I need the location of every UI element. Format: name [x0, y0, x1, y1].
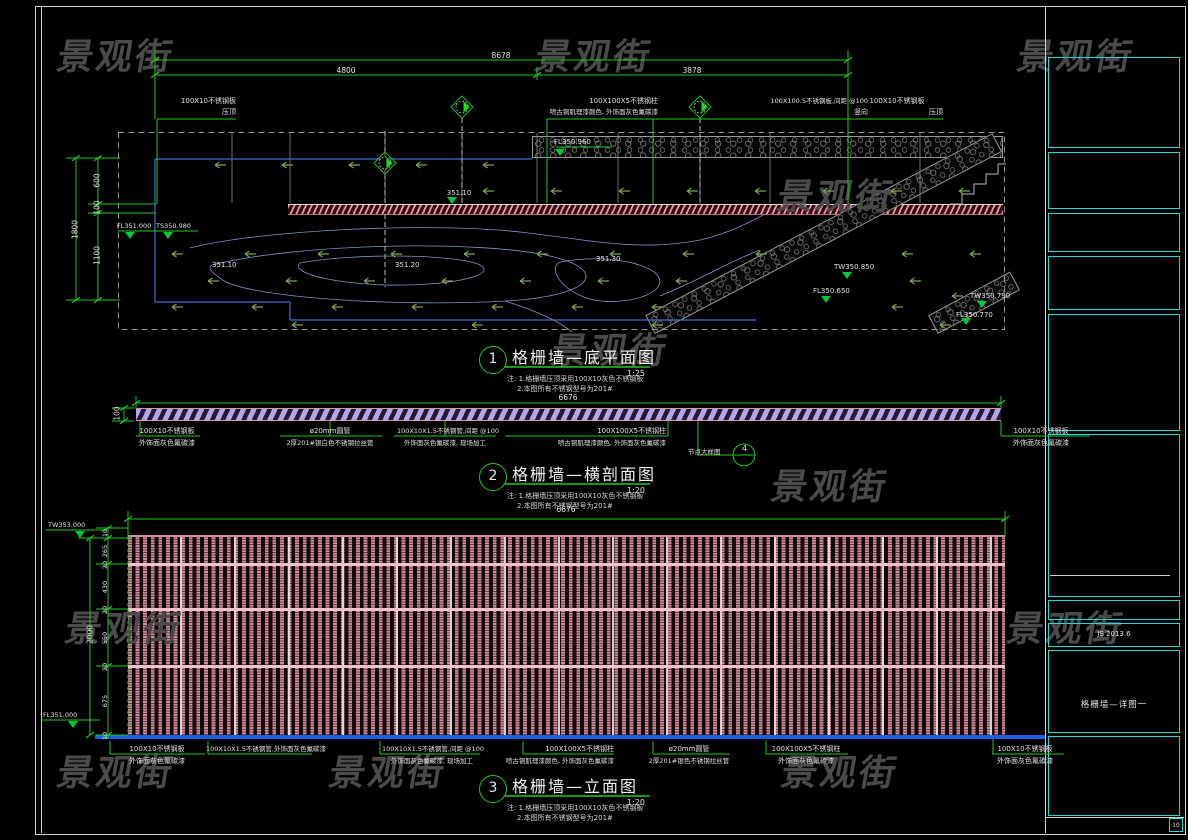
- elev-leader-column-1: 100X100X5不锈钢柱: [518, 744, 614, 754]
- view-number-1: 1: [479, 346, 507, 374]
- sec-leader-plate-left-2: 外饰面灰色氟碳漆: [128, 438, 206, 448]
- spot-fl351000: FL351.000: [117, 221, 157, 231]
- plan-dim-left-total: 1800: [71, 217, 80, 243]
- leader-cap-right-2: 压顶: [851, 107, 943, 117]
- sheet-number: 10: [1169, 821, 1183, 831]
- plan-contour-lines: [190, 214, 765, 332]
- elev-leader-tube-b1: 100X10X1.5不锈钢管,间距 @100: [382, 744, 480, 754]
- elev-seg-675: 675: [100, 690, 110, 712]
- elev-leader-column-2: 喷古铜肌理漆颜色, 外饰面灰色氟碳漆: [478, 756, 614, 766]
- elev-dim-left-total: 2000: [86, 621, 95, 649]
- leader-plate-1: 100X100.5不锈钢板,间距 @100: [730, 96, 868, 106]
- view-number-3: 3: [479, 775, 507, 803]
- elev-seg-20c: 20: [100, 656, 110, 678]
- spot-ts350980: TS350.980: [156, 221, 198, 231]
- spot-35110-top: 351.10: [437, 188, 481, 198]
- plan-dim-left3: 1100: [93, 243, 102, 269]
- sec-leader-pipe-2: 2厚201#银白色不锈钢拉丝管: [282, 438, 378, 448]
- elev-leader-column-b1: 100X100X5不锈钢柱: [764, 744, 848, 754]
- elev-leader-tube-b2: 外饰面灰色氟碳漆, 现场加工: [386, 756, 478, 766]
- elevation-dim-ticks: [86, 516, 1009, 738]
- detail-bubble-number: 4: [737, 444, 752, 454]
- elev-seg-430: 430: [100, 576, 110, 598]
- contour-35130: 351.30: [596, 254, 638, 264]
- plan-planting-arrows: [172, 162, 981, 328]
- elev-leader-plate-left-2: 外饰面灰色氟碳漆: [118, 756, 196, 766]
- titleblock-date: JS 2013.6: [1048, 629, 1180, 639]
- sec-leader-column-2: 喷古铜肌理漆颜色, 外饰面灰色氟碳漆: [530, 438, 666, 448]
- plan-view-title: 格栅墙—底平面图: [512, 344, 656, 368]
- elevation-note-2: 2.本图所有不锈钢型号为201#: [517, 814, 613, 824]
- plan-boundary: [119, 133, 1007, 330]
- level-fl351000: FL351.000: [43, 710, 97, 720]
- elevation-view-title: 格栅墙—立面图: [512, 773, 638, 797]
- detail-bubble-label: 节点大样图: [688, 447, 732, 457]
- elev-leader-pipe-1: ø20mm圆管: [650, 744, 728, 754]
- plan-dimensions: [66, 50, 943, 300]
- plan-note-1: 注: 1.格栅墙压顶采用100X10灰色不锈钢板: [507, 375, 643, 385]
- titleblock-sheet-name: 格栅墙—详图一: [1048, 700, 1180, 710]
- elev-leader-plate-right-1: 100X10不锈钢板: [994, 744, 1056, 754]
- elevation-note-1: 注: 1.格栅墙压顶采用100X10灰色不锈钢板: [507, 804, 643, 814]
- sec-leader-plate-left-1: 100X10不锈钢板: [136, 426, 198, 436]
- spot-fl350650: FL350.650: [813, 286, 861, 296]
- leader-column-1: 100X100X5不锈钢柱: [540, 96, 658, 106]
- leader-cap-left-2: 压顶: [150, 107, 236, 117]
- elev-leader-pipe-2: 2厚201#银色不锈钢拉丝管: [634, 756, 744, 766]
- elev-seg-550: 550: [100, 627, 110, 649]
- sec-leader-tube-1: 100X10X1.5不锈钢管,间距 @100: [397, 426, 493, 436]
- sec-leader-plate-right-1: 100X10不锈钢板: [1010, 426, 1072, 436]
- plan-dim-left1: 600: [93, 170, 102, 192]
- elev-seg-20a: 20: [100, 554, 110, 576]
- plan-dim-seg1: 4800: [315, 66, 377, 75]
- plan-bed-edges: [155, 159, 756, 320]
- elev-seg-20b: 20: [100, 599, 110, 621]
- elev-leader-plate-left-1: 100X10不锈钢板: [126, 744, 188, 754]
- section-cut-symbols: [374, 96, 711, 287]
- contour-35110: 351.10: [212, 260, 254, 270]
- elev-leader-column-b2: 外饰面灰色氟碳漆: [770, 756, 842, 766]
- leader-cap-right-1: 100X10不锈钢板: [851, 96, 943, 106]
- elev-seg-10b: 10: [100, 725, 110, 747]
- drawing-linework: [0, 0, 1188, 840]
- spot-fl350960: FL350.960: [554, 137, 612, 147]
- drawing-sheet: 景观街 景观街 景观街 景观街 景观街 景观街 景观街 景观街 景观街 景观街 …: [0, 0, 1188, 840]
- section-dim-total: 6676: [537, 393, 599, 402]
- section-view-title: 格栅墙—横剖面图: [512, 461, 656, 485]
- view-number-2: 2: [479, 463, 507, 491]
- section-dim-height: 100: [113, 403, 122, 425]
- plan-dim-total: 8678: [470, 51, 532, 60]
- sec-leader-column-1: 100X100X5不锈钢柱: [560, 426, 666, 436]
- leader-cap-left-1: 100X10不锈钢板: [150, 96, 236, 106]
- section-dim-ticks: [120, 400, 1005, 424]
- spot-tw350850: TW350.850: [834, 262, 882, 272]
- elev-dim-total: 6676: [535, 505, 597, 514]
- plan-dim-left2: 100: [93, 197, 102, 219]
- elevation-dimensions: [41, 511, 1064, 754]
- elev-leader-tube-a: 100X10X1.5不锈钢管,外饰面灰色氟碳漆: [206, 744, 312, 754]
- sec-leader-pipe-1: ø20mm圆管: [300, 426, 360, 436]
- plan-dim-seg2: 3878: [661, 66, 723, 75]
- spot-tw350790: TW350.790: [970, 291, 1018, 301]
- sec-leader-plate-right-2: 外饰面灰色氟碳漆: [1002, 438, 1080, 448]
- leader-column-2: 喷古铜肌理漆颜色, 外饰面灰色氟碳漆: [520, 107, 658, 117]
- spot-fl350770: FL350.770: [956, 310, 1004, 320]
- contour-35120: 351.20: [395, 260, 437, 270]
- level-tw353000: TW353.000: [48, 520, 102, 530]
- elev-leader-plate-right-2: 外饰面灰色氟碳漆: [986, 756, 1064, 766]
- sec-leader-tube-2: 外饰面灰色氟碳漆, 现场加工: [400, 438, 490, 448]
- leader-plate-2: 竖向: [730, 107, 868, 117]
- section-note-1: 注: 1.格栅墙压顶采用100X10灰色不锈钢板: [507, 492, 643, 502]
